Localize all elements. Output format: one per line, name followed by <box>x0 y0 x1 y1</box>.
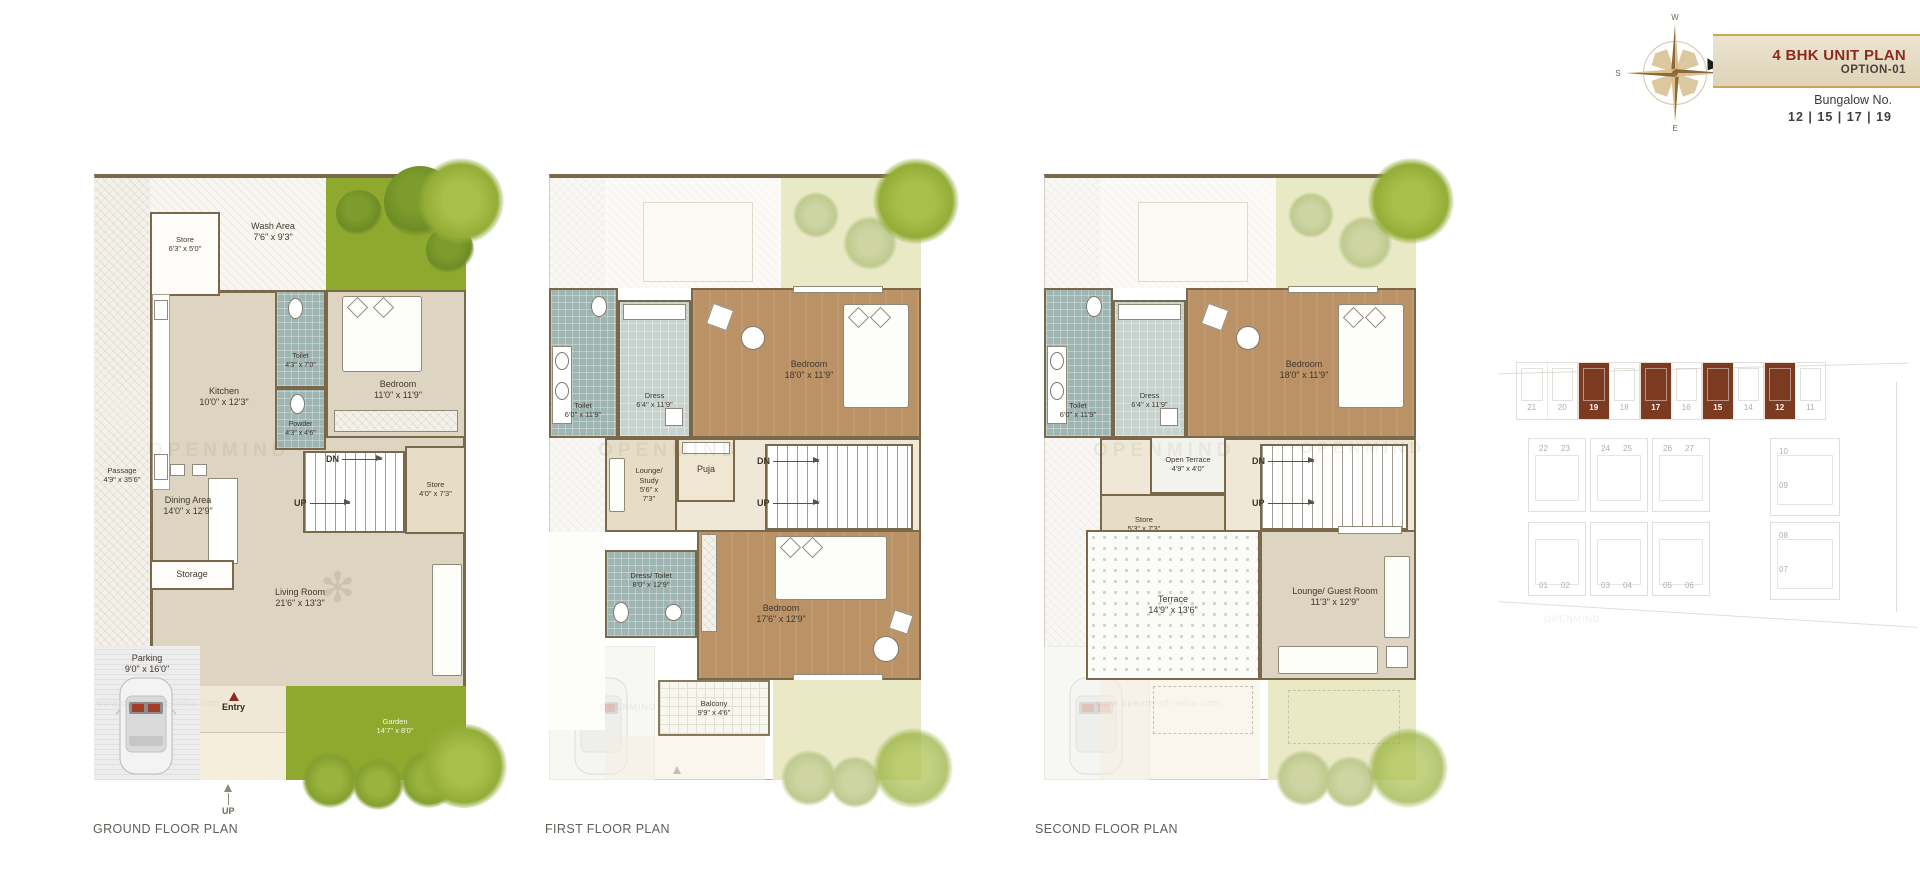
wardrobe <box>701 534 717 632</box>
stairs-dn-arrow: DN <box>326 454 382 464</box>
window <box>1338 526 1402 534</box>
watermark: www.openmind-india.com <box>1096 698 1221 708</box>
unit-number: 24 <box>1601 444 1610 453</box>
store-ghost <box>643 202 753 282</box>
unit-number: 04 <box>1623 581 1632 590</box>
unit-number: 18 <box>1620 403 1629 412</box>
title-band: 4 BHK UNIT PLAN OPTION-01 <box>1713 34 1920 88</box>
unit-number: 05 <box>1663 581 1672 590</box>
room-store-2 <box>405 446 466 534</box>
unit-pair: 17 16 <box>1640 362 1702 420</box>
unit-number: 01 <box>1539 581 1548 590</box>
sofa <box>609 458 625 512</box>
void <box>549 532 605 730</box>
room-dress-toilet <box>605 550 697 638</box>
unit-pair: 15 14 <box>1702 362 1764 420</box>
wash-basin <box>1050 382 1064 400</box>
first-floor-plan: Toilet 6'0" x 11'9" Dress 6'4" x 11'9" B… <box>543 168 935 814</box>
dn-label: DN <box>757 456 770 466</box>
closet <box>1118 304 1181 320</box>
wash-basin <box>555 382 569 400</box>
powder-wc <box>290 394 305 414</box>
bungalow-block: Bungalow No. 12 | 15 | 17 | 19 <box>1700 93 1906 124</box>
wash-basin <box>1050 352 1064 370</box>
window <box>793 286 883 293</box>
unit-11: 11 <box>1795 363 1826 419</box>
stairs-up-arrow: UP <box>757 498 819 508</box>
unit-pair: 19 18 <box>1578 362 1640 420</box>
unit-block-24-25: 24 25 <box>1590 438 1648 512</box>
store-ghost <box>1138 202 1248 282</box>
arrow-line <box>310 503 350 504</box>
unit-block-05-06: 05 06 <box>1652 522 1710 596</box>
tree <box>352 758 404 810</box>
tree <box>873 728 953 808</box>
unit-number: 25 <box>1623 444 1632 453</box>
dress-stool <box>665 408 683 426</box>
chair <box>170 464 185 476</box>
closet <box>623 304 686 320</box>
arrow-line <box>773 503 819 504</box>
unit-number: 21 <box>1527 403 1536 412</box>
sofa <box>1278 646 1378 674</box>
unit-number: 14 <box>1744 403 1753 412</box>
unit-number: 02 <box>1561 581 1570 590</box>
unit-block-26-27: 26 27 <box>1652 438 1710 512</box>
tree <box>418 158 504 244</box>
unit-20: 20 <box>1547 363 1578 419</box>
arrow-line <box>1268 461 1314 462</box>
bungalow-numbers: 12 | 15 | 17 | 19 <box>1700 110 1892 124</box>
window <box>1288 286 1378 293</box>
stairs-up-arrow: UP <box>1252 498 1314 508</box>
unit-number: 27 <box>1685 444 1694 453</box>
watermark: OPENMIND <box>600 702 657 712</box>
entry-label: Entry <box>222 702 245 712</box>
toilet-wc <box>613 602 629 623</box>
unit-number: 12 <box>1775 403 1784 412</box>
rug-star: ✻ <box>320 563 355 612</box>
up-label: UP <box>222 806 235 816</box>
compass-east-label: E <box>1672 124 1677 132</box>
second-floor-title: SECOND FLOOR PLAN <box>1035 822 1178 836</box>
unit-number: 03 <box>1601 581 1610 590</box>
kitchen-sink <box>154 300 168 320</box>
stairs-up-arrow: UP <box>294 498 350 508</box>
outside-up-ghost <box>673 766 681 774</box>
tree <box>793 192 839 238</box>
balcony-ghost-outline <box>1153 686 1253 734</box>
ground-floor-title: GROUND FLOOR PLAN <box>93 822 238 836</box>
watermark: OPENMIND <box>1093 440 1235 462</box>
stairs-dn-arrow: DN <box>757 456 819 466</box>
site-map: 21 20 19 18 17 16 15 14 12 11 22 23 <box>1498 352 1908 652</box>
unit-21: 21 <box>1517 363 1547 419</box>
unit-number: 15 <box>1713 403 1722 412</box>
unit-number: 07 <box>1779 565 1788 574</box>
second-floor-plan: Toilet 6'0" x 11'9" Dress 6'4" x 11'9" B… <box>1038 168 1430 814</box>
arrow-line <box>1268 503 1314 504</box>
toilet-wc <box>1086 296 1102 317</box>
tree <box>1288 192 1334 238</box>
terrace <box>1086 530 1260 680</box>
passage-area <box>94 178 150 646</box>
watermark: OPENMIND <box>1544 614 1601 624</box>
room-storage <box>150 560 234 590</box>
unit-16: 16 <box>1671 363 1702 419</box>
unit-18: 18 <box>1609 363 1640 419</box>
arrow-stem <box>228 793 229 805</box>
arrow-line <box>342 459 382 460</box>
up-label: UP <box>757 498 770 508</box>
bungalow-label: Bungalow No. <box>1700 93 1892 107</box>
unit-block-10-09: 10 09 <box>1770 438 1840 516</box>
watermark: www.openmind-india.com <box>96 698 221 708</box>
unit-number: 09 <box>1779 481 1788 490</box>
watermark: OPENMIND <box>148 440 290 462</box>
up-label: UP <box>294 498 307 508</box>
site-row-1: 21 20 19 18 17 16 15 14 12 11 <box>1516 362 1826 420</box>
wash-basin <box>555 352 569 370</box>
unit-number: 17 <box>1651 403 1660 412</box>
up-arrow-icon <box>673 766 681 774</box>
wardrobe <box>334 410 458 432</box>
unit-number: 26 <box>1663 444 1672 453</box>
unit-number: 10 <box>1779 447 1788 456</box>
balcony <box>658 680 770 736</box>
car-icon <box>116 676 176 776</box>
first-floor-title: FIRST FLOOR PLAN <box>545 822 670 836</box>
site-boundary-line <box>1896 382 1897 612</box>
arrow-line <box>773 461 819 462</box>
wash-basin <box>665 604 682 621</box>
page-subtitle: OPTION-01 <box>1841 64 1906 76</box>
up-label: UP <box>1252 498 1265 508</box>
unit-block-22-23: 22 23 <box>1528 438 1586 512</box>
tree <box>302 752 358 808</box>
outside-up-marker: UP <box>222 784 235 816</box>
watermark: OPENMIND <box>1300 440 1426 458</box>
page-title: 4 BHK UNIT PLAN <box>1772 47 1906 64</box>
unit-number: 23 <box>1561 444 1570 453</box>
dn-label: DN <box>1252 456 1265 466</box>
round-table <box>741 326 765 350</box>
unit-block-01-02: 01 02 <box>1528 522 1586 596</box>
unit-block-03-04: 03 04 <box>1590 522 1648 596</box>
unit-19-highlighted: 19 <box>1579 363 1609 419</box>
tree <box>873 158 959 244</box>
unit-number: 11 <box>1806 403 1814 412</box>
dining-table <box>208 478 238 564</box>
round-chair <box>873 636 899 662</box>
toilet-wc <box>591 296 607 317</box>
entry-arrow-icon <box>229 692 239 701</box>
porch <box>200 732 286 780</box>
side-table <box>1386 646 1408 668</box>
unit-number: 06 <box>1685 581 1694 590</box>
sofa <box>1384 556 1410 638</box>
unit-14: 14 <box>1733 363 1764 419</box>
unit-pair: 12 11 <box>1764 362 1826 420</box>
tree <box>336 190 382 236</box>
room-store-1 <box>150 212 220 296</box>
watermark: OPENMIND <box>598 440 740 462</box>
unit-number: 19 <box>1589 403 1598 412</box>
chair <box>192 464 207 476</box>
unit-block-08-07: 08 07 <box>1770 522 1840 600</box>
toilet-wc <box>288 298 303 319</box>
porch-ghost <box>605 736 765 780</box>
up-arrow-icon <box>224 784 232 792</box>
unit-number: 20 <box>1558 403 1567 412</box>
unit-number: 08 <box>1779 531 1788 540</box>
compass-south-label: S <box>1615 69 1620 78</box>
compass-west-label: W <box>1671 13 1679 22</box>
unit-12-highlighted: 12 <box>1765 363 1795 419</box>
tree <box>420 724 508 808</box>
unit-pair: 21 20 <box>1516 362 1578 420</box>
unit-17-highlighted: 17 <box>1641 363 1671 419</box>
round-table <box>1236 326 1260 350</box>
dn-label: DN <box>326 454 339 464</box>
entry-marker: Entry <box>222 692 245 712</box>
tree <box>1368 728 1448 808</box>
unit-number: 22 <box>1539 444 1548 453</box>
unit-number: 16 <box>1682 403 1691 412</box>
tree <box>1368 158 1454 244</box>
unit-15-highlighted: 15 <box>1703 363 1733 419</box>
sofa <box>432 564 462 676</box>
page: W E S N 4 BHK UNIT PLAN OPTION-01 Bungal… <box>0 0 1920 896</box>
dress-stool <box>1160 408 1178 426</box>
ground-floor-plan: Store 6'3" x 5'0" Passage 4'9" x 35'6" W… <box>88 168 480 814</box>
